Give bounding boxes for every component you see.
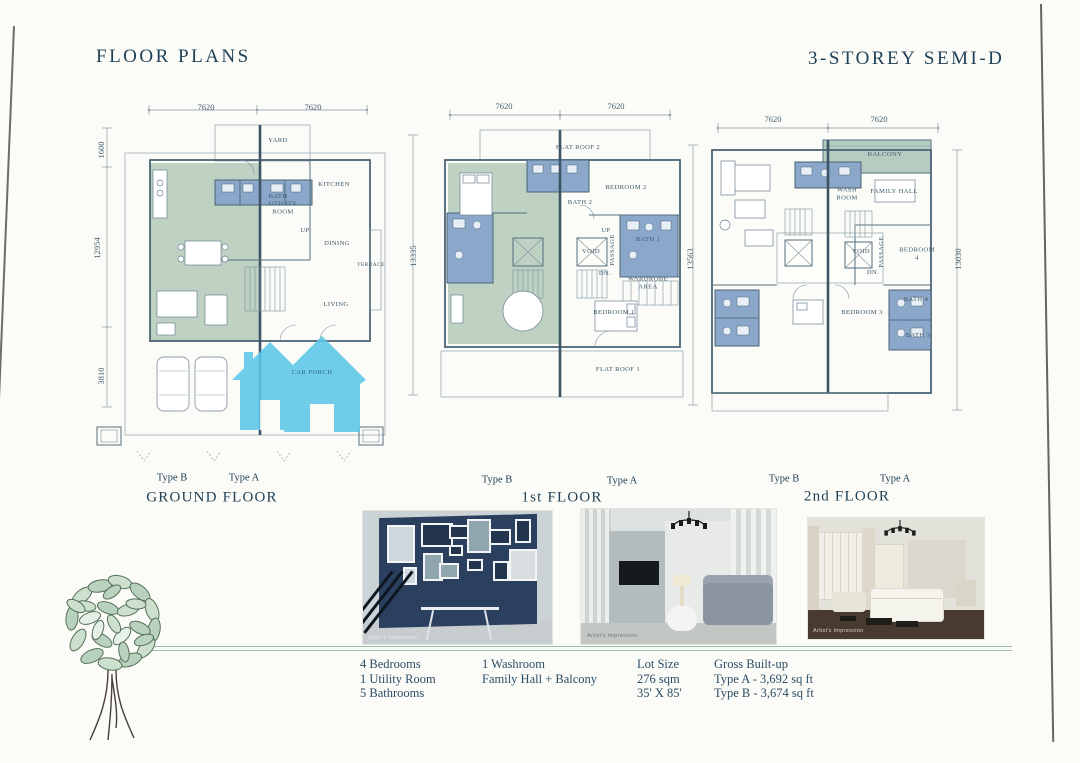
room-label-bedroom-1: BEDROOM 1 bbox=[593, 309, 635, 317]
room-label-kitchen: KITCHEN bbox=[318, 181, 350, 189]
room-label-passage: PASSAGE bbox=[878, 236, 886, 268]
page-title: FLOOR PLANS bbox=[96, 46, 251, 68]
photo-gallery-wall: Artist's Impression bbox=[362, 510, 553, 645]
tree-illustration-icon bbox=[52, 548, 172, 748]
specs-features-2: 1 Washroom Family Hall + Balcony bbox=[482, 657, 597, 686]
type-a-label: Type A bbox=[607, 476, 637, 487]
room-label-living: LIVING bbox=[323, 301, 348, 309]
spec-line: 276 sqm bbox=[637, 672, 682, 687]
dim-label: 1600 bbox=[96, 142, 106, 159]
specs-lot-size: Lot Size 276 sqm 35' X 85' bbox=[637, 657, 682, 701]
dim-label: 3810 bbox=[96, 368, 106, 385]
photo-caption: Artist's Impression bbox=[813, 628, 863, 634]
spec-line: 35' X 85' bbox=[637, 686, 682, 701]
room-label-bedroom-2: BEDROOM 2 bbox=[605, 184, 647, 192]
curtain bbox=[581, 509, 611, 639]
spec-line: 1 Utility Room bbox=[360, 672, 436, 687]
photo-caption: Artist's Impression bbox=[587, 633, 637, 639]
dim-label: 7620 bbox=[198, 102, 215, 112]
picture-frame bbox=[387, 525, 415, 563]
photo-caption: Artist's Impression bbox=[368, 635, 418, 641]
picture-frame bbox=[467, 559, 483, 571]
specs-gross-built-up: Gross Built-up Type A - 3,692 sq ft Type… bbox=[714, 657, 814, 701]
storey-title: 3-STOREY SEMI-D bbox=[808, 48, 1004, 70]
room-label-bath-3: BATH 3 bbox=[906, 332, 931, 340]
floor-books bbox=[896, 621, 918, 627]
floor-name-ground: GROUND FLOOR bbox=[146, 490, 278, 507]
type-b-label: Type B bbox=[769, 474, 799, 485]
dim-label: 13563 bbox=[685, 248, 695, 269]
side-table bbox=[667, 605, 697, 631]
specs-features-1: 4 Bedrooms 1 Utility Room 5 Bathrooms bbox=[360, 657, 436, 701]
room-label-bath-4: BATH 4 bbox=[904, 296, 929, 304]
window-blinds bbox=[816, 532, 864, 600]
picture-frame bbox=[515, 519, 531, 543]
room-label-balcony: BALCONY bbox=[868, 151, 903, 159]
dim-label: 7620 bbox=[871, 114, 888, 124]
chandelier-icon bbox=[667, 511, 711, 541]
room-label-bedroom-3: BEDROOM 3 bbox=[841, 309, 883, 317]
room-label-bath-1: BATH 1 bbox=[636, 236, 661, 244]
tv-screen bbox=[619, 561, 659, 585]
chandelier-icon bbox=[880, 520, 920, 546]
room-label-void: VOID bbox=[852, 248, 870, 256]
picture-frame bbox=[449, 525, 469, 539]
spec-line: Lot Size bbox=[637, 657, 682, 672]
type-a-label: Type A bbox=[229, 473, 259, 484]
picture-frame bbox=[493, 561, 509, 581]
floor-books bbox=[866, 618, 892, 625]
spec-line: Family Hall + Balcony bbox=[482, 672, 597, 687]
room-label-dn: DN. bbox=[599, 270, 611, 278]
dim-label: 7620 bbox=[765, 114, 782, 124]
room-label-passage: PASSAGE bbox=[609, 234, 617, 266]
spec-line: Type A - 3,692 sq ft bbox=[714, 672, 814, 687]
room-label-bedroom-4: BEDROOM 4 bbox=[899, 246, 935, 261]
type-b-label: Type B bbox=[482, 475, 512, 486]
page-border-left bbox=[0, 26, 14, 743]
room-label-flat-roof-2: FLAT ROOF 2 bbox=[556, 144, 600, 152]
chaise bbox=[832, 592, 866, 612]
developer-house-logo-icon bbox=[224, 322, 366, 434]
room-label-up: UP bbox=[300, 227, 309, 235]
room-label-terrace: TERRACE bbox=[357, 262, 385, 268]
divider-rule bbox=[150, 646, 1012, 651]
room-label-flat-roof-1: FLAT ROOF 1 bbox=[596, 366, 640, 374]
sofa bbox=[703, 583, 773, 625]
type-b-label: Type B bbox=[157, 473, 187, 484]
room-label-void: VOID bbox=[582, 248, 600, 256]
room-label-utility-room: UTILITY ROOM bbox=[263, 200, 303, 215]
spec-line: Gross Built-up bbox=[714, 657, 814, 672]
picture-frame bbox=[439, 563, 459, 579]
spec-line: 1 Washroom bbox=[482, 657, 597, 672]
floor-name-1st: 1st FLOOR bbox=[521, 490, 602, 507]
page-border-right bbox=[1040, 4, 1054, 742]
second-floor-drawing bbox=[685, 105, 985, 480]
table-lamp-shade bbox=[673, 575, 691, 586]
dim-label: 13335 bbox=[408, 245, 418, 266]
dim-label: 7620 bbox=[305, 102, 322, 112]
room-label-yard: YARD bbox=[268, 137, 288, 145]
floor-books bbox=[840, 616, 856, 621]
room-label-family-hall: FAMILY HALL bbox=[870, 188, 918, 196]
room-label-wardrobe-area: WARDROBE AREA bbox=[624, 275, 672, 290]
room-label-car-porch: CAR PORCH bbox=[292, 369, 333, 377]
picture-frame bbox=[467, 519, 491, 553]
bed bbox=[870, 588, 944, 622]
floor-name-2nd: 2nd FLOOR bbox=[804, 489, 890, 506]
bed-linen-line bbox=[872, 598, 942, 599]
dim-label: 7620 bbox=[496, 101, 513, 111]
picture-frame bbox=[489, 529, 511, 545]
brochure-page: FLOOR PLANS 3-STOREY SEMI-D bbox=[0, 0, 1080, 763]
dim-label: 12954 bbox=[92, 237, 102, 258]
room-label-wash-room: WASH ROOM bbox=[831, 186, 863, 201]
spec-line: 4 Bedrooms bbox=[360, 657, 436, 672]
photo-bedroom: Artist's Impression bbox=[807, 517, 985, 640]
spec-line: 5 Bathrooms bbox=[360, 686, 436, 701]
picture-frame bbox=[509, 549, 537, 581]
dim-label: 13030 bbox=[953, 248, 963, 269]
photo-living-hall: Artist's Impression bbox=[580, 508, 777, 645]
side-table bbox=[956, 580, 976, 606]
room-label-dining: DINING bbox=[324, 240, 350, 248]
table-lamp bbox=[680, 586, 684, 606]
dim-label: 7620 bbox=[608, 101, 625, 111]
type-a-label: Type A bbox=[880, 474, 910, 485]
room-label-bath-2: BATH 2 bbox=[568, 199, 593, 207]
spec-line: Type B - 3,674 sq ft bbox=[714, 686, 814, 701]
room-label-dn: DN. bbox=[867, 269, 879, 277]
picture-frame bbox=[449, 545, 463, 556]
